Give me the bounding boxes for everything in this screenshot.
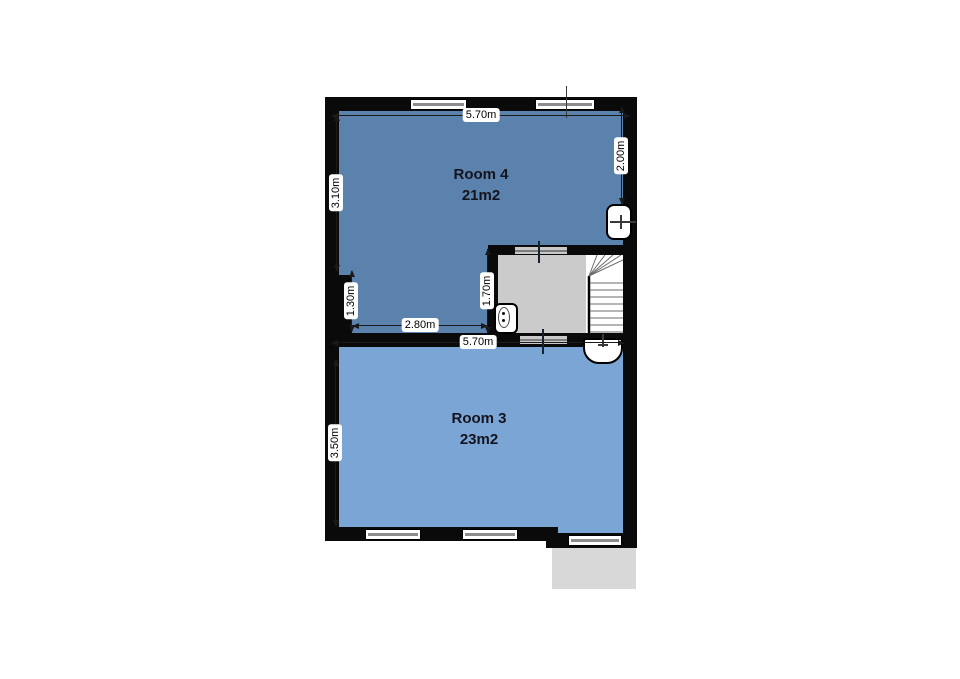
dimension-room3-left-height: 3.50m — [335, 360, 336, 526]
stairs-treads-icon — [586, 255, 623, 335]
window-balcony — [568, 535, 622, 546]
door-room4-stairwell — [515, 247, 567, 254]
dimension-stairwell-height: 1.70m — [487, 249, 488, 333]
room4-label: Room 4 21m2 — [406, 164, 556, 206]
exterior-marker-line — [566, 86, 567, 118]
floor-plan: 5.70m 3.10m 2.00m 1.30m 2.80m 1.70m 5.70… — [0, 0, 960, 679]
dimension-label: 1.70m — [480, 273, 494, 310]
dimension-label: 5.70m — [460, 335, 497, 349]
balcony-floor — [552, 548, 636, 589]
door-room4-stairwell-tick — [538, 241, 540, 263]
window-bottom-1 — [365, 529, 421, 540]
dimension-room4-bottom-width: 2.80m — [353, 325, 487, 326]
window-bottom-2 — [462, 529, 518, 540]
dimension-label: 2.00m — [614, 137, 628, 174]
stairs — [586, 255, 623, 335]
dimension-label: 2.80m — [402, 318, 439, 332]
room3-label: Room 3 23m2 — [404, 408, 554, 450]
dimension-room4-top-width: 5.70m — [332, 115, 630, 116]
dimension-room3-top-width: 5.70m — [332, 342, 624, 343]
dimension-room4-right-height: 2.00m — [621, 107, 622, 204]
dimension-label: 3.10m — [329, 175, 343, 212]
room3-area: 23m2 — [404, 429, 554, 450]
faucet-icon — [610, 221, 636, 223]
dimension-room4-left-height: 3.10m — [336, 115, 337, 271]
toilet-icon — [494, 303, 518, 334]
dimension-label: 1.30m — [344, 283, 358, 320]
dimension-label: 3.50m — [328, 425, 342, 462]
window-top-1 — [410, 99, 467, 110]
room4-name: Room 4 — [406, 164, 556, 185]
window-top-2 — [535, 99, 595, 110]
room4-area: 21m2 — [406, 185, 556, 206]
sink-icon — [606, 204, 632, 240]
room3-name: Room 3 — [404, 408, 554, 429]
wall-bottom-left — [325, 527, 558, 541]
dimension-label: 5.70m — [463, 108, 500, 122]
